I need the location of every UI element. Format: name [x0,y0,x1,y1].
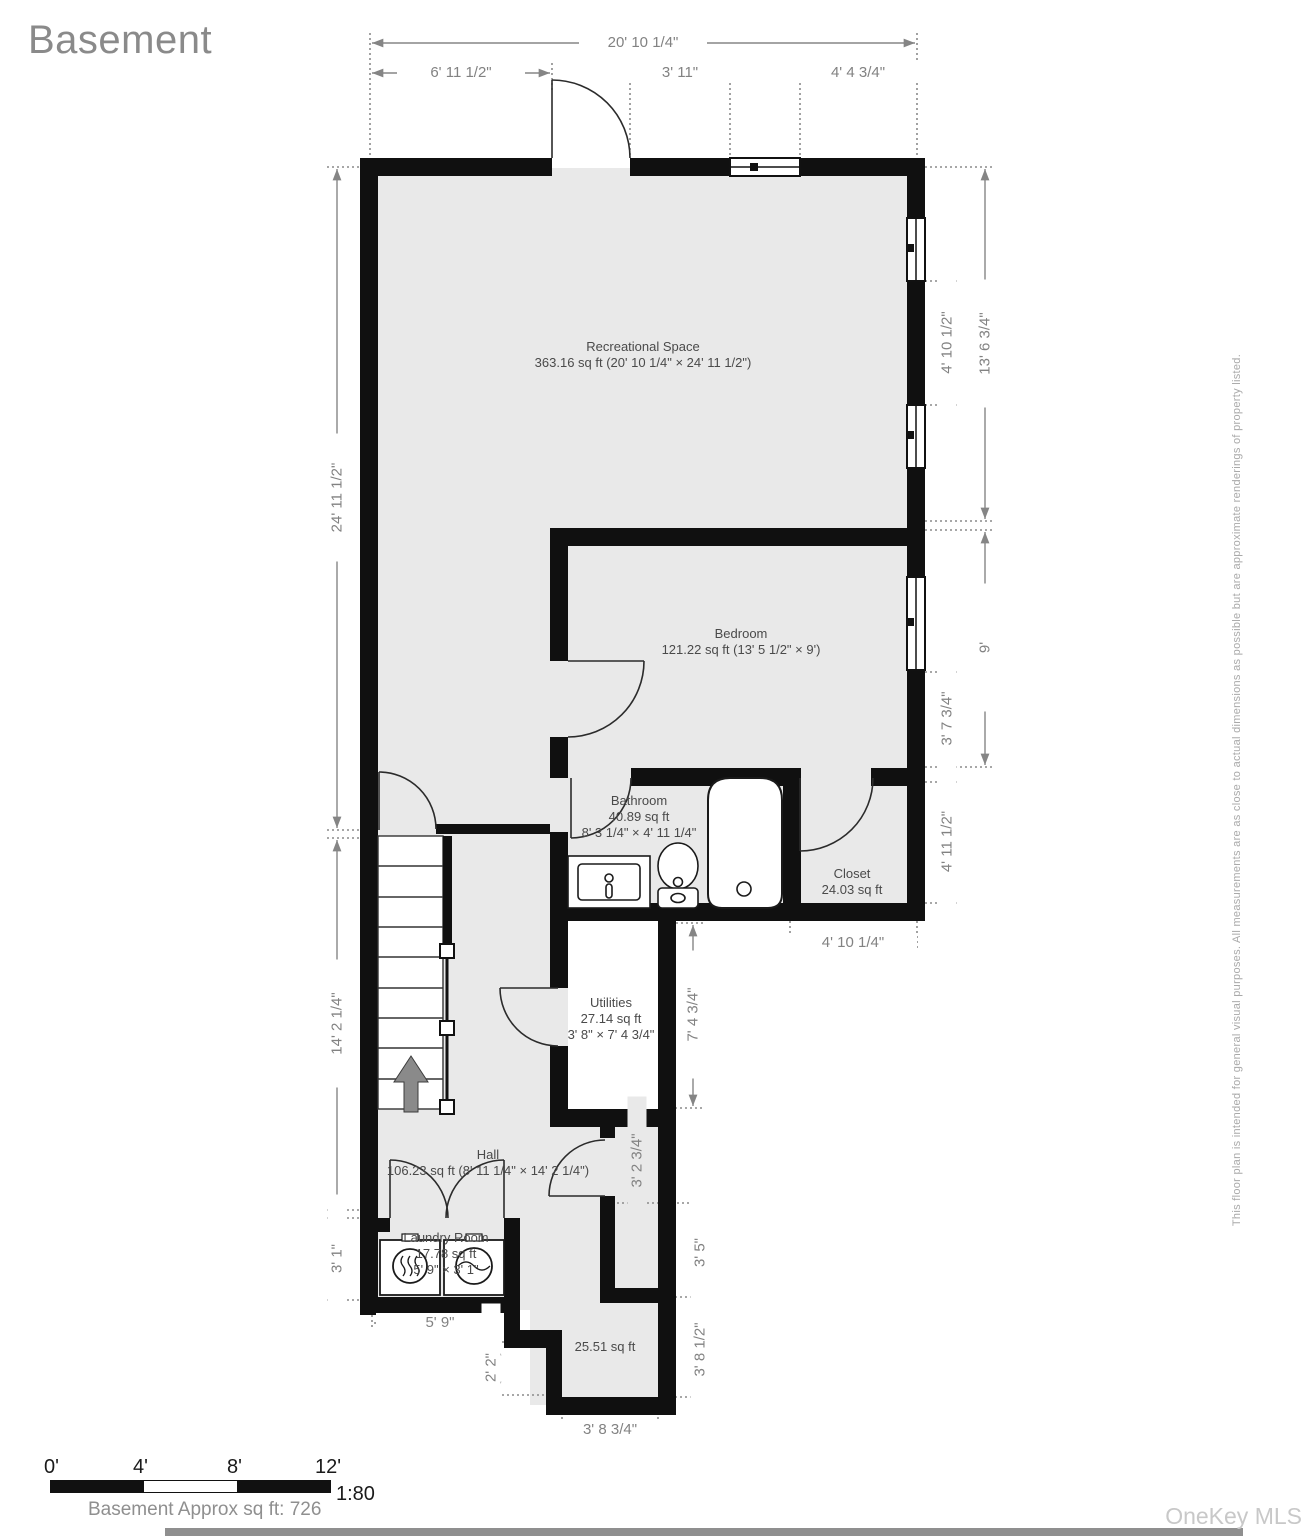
room-label-hall: Hall 106.23 sq ft (8' 11 1/4" × 14' 2 1/… [338,1147,638,1179]
dim-nook-height: 3' 8 1/2" [691,1286,710,1414]
room-size: 106.23 sq ft (8' 11 1/4" × 14' 2 1/4") [338,1163,638,1179]
room-name: Laundry Room [371,1230,521,1246]
room-name: Utilities [536,995,686,1011]
scale-bar-segment [51,1481,144,1492]
watermark: OneKey MLS [1150,1503,1302,1530]
room-name: Closet [777,866,927,882]
dim-closet-width: 4' 10 1/4" [789,933,917,952]
dim-strip-upper: 3' 2 3/4" [628,1097,647,1225]
room-name: Bathroom [539,793,739,809]
window-right-2 [907,405,925,468]
room-size: 27.14 sq ft [536,1011,686,1027]
dim-step: 2' 2" [482,1304,501,1432]
dim-right-lower-window: 3' 7 3/4" [938,655,957,783]
room-size: 25.51 sq ft [545,1339,665,1355]
entry-door [552,80,630,158]
room-size: 17.78 sq ft [371,1246,521,1262]
toilet [658,843,698,908]
room-size: 8' 3 1/4" × 4' 11 1/4" [539,825,739,841]
room-label-bathroom: Bathroom 40.89 sq ft 8' 3 1/4" × 4' 11 1… [539,793,739,841]
scale-tick-8: 8' [227,1456,242,1479]
scale-tick-12: 12' [315,1456,341,1479]
room-label-bedroom: Bedroom 121.22 sq ft (13' 5 1/2" × 9') [541,626,941,658]
room-size: 3' 8" × 7' 4 3/4" [536,1027,686,1043]
room-name: Recreational Space [443,339,843,355]
room-label-laundry: Laundry Room 17.78 sq ft 5' 9" × 3' 1" [371,1230,521,1278]
room-name: Bedroom [541,626,941,642]
dim-right-upper-total: 13' 6 3/4" [976,280,995,408]
dim-top-left: 6' 11 1/2" [397,63,525,82]
dim-nook-width: 3' 8 3/4" [546,1420,674,1439]
dim-right-closet: 4' 11 1/2" [938,778,957,906]
page-title: Basement [28,18,212,63]
room-size: 121.22 sq ft (13' 5 1/2" × 9') [541,642,941,658]
room-label-nook: 25.51 sq ft [545,1339,665,1355]
dim-top-mid: 3' 11" [616,63,744,82]
bathtub-drain [737,882,751,896]
dim-top-total: 20' 10 1/4" [579,33,707,52]
window-right-1 [907,218,925,281]
dim-top-right: 4' 4 3/4" [794,63,922,82]
floor-plan-page: Basement Recreational Space 363.16 sq ft… [0,0,1305,1536]
disclaimer-text: This floor plan is intended for general … [1231,260,1245,1320]
scale-bar-segment [144,1481,237,1492]
room-size: 5' 9" × 3' 1" [371,1262,521,1278]
scale-bar-segment [237,1481,330,1492]
scale-ratio: 1:80 [336,1483,375,1506]
floor-plan-drawing [0,0,1305,1536]
room-size: 40.89 sq ft [539,809,739,825]
staircase [378,836,454,1114]
dim-left-upper: 24' 11 1/2" [328,434,347,562]
scale-tick-0: 0' [44,1456,59,1479]
footer-divider-bar [165,1528,1243,1536]
room-label-closet: Closet 24.03 sq ft [777,866,927,898]
room-size: 24.03 sq ft [777,882,927,898]
approx-area-label: Basement Approx sq ft: 726 [88,1499,321,1521]
vanity-sink [568,856,650,908]
room-label-recreational: Recreational Space 363.16 sq ft (20' 10 … [443,339,843,371]
dim-right-window-gap: 4' 10 1/2" [938,279,957,407]
room-size: 363.16 sq ft (20' 10 1/4" × 24' 11 1/2") [443,355,843,371]
dim-left-lower: 3' 1" [328,1195,347,1323]
window-top [730,158,800,176]
dim-utilities-height: 7' 4 3/4" [684,951,703,1079]
room-label-utilities: Utilities 27.14 sq ft 3' 8" × 7' 4 3/4" [536,995,686,1043]
dim-right-bedroom: 9' [976,584,995,712]
scale-bar [50,1480,331,1493]
room-name: Hall [338,1147,638,1163]
scale-tick-4: 4' [133,1456,148,1479]
dim-left-mid: 14' 2 1/4" [328,960,347,1088]
